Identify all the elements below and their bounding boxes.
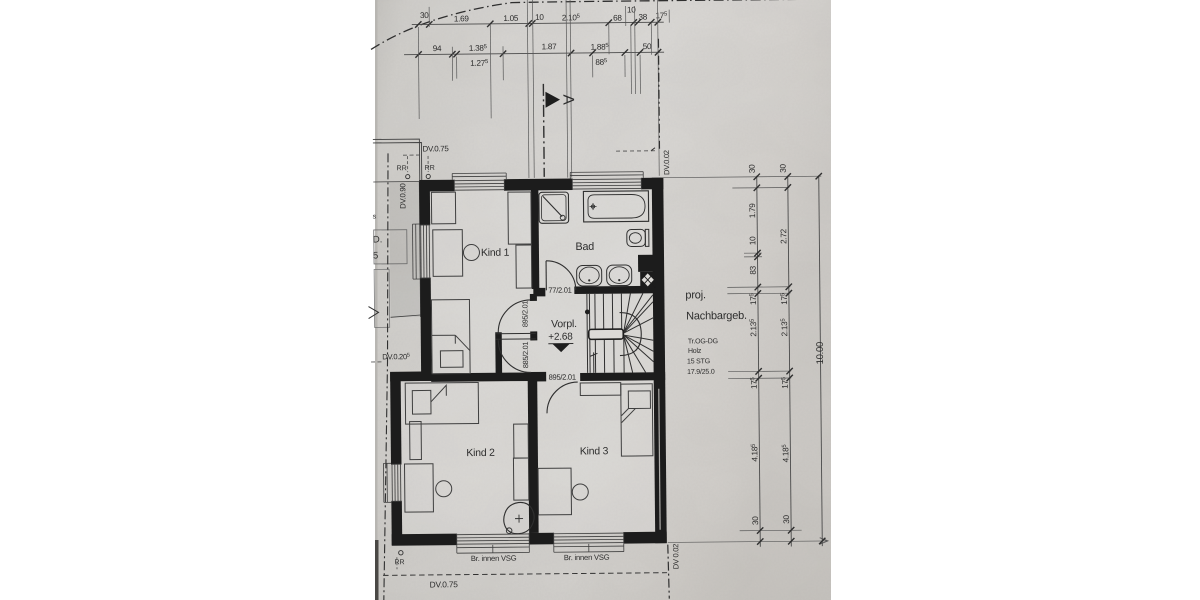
- svg-text:Kind 3: Kind 3: [580, 446, 609, 457]
- svg-text:DV.0.02: DV.0.02: [662, 150, 671, 175]
- svg-text:Br. innen VSG: Br. innen VSG: [564, 553, 610, 562]
- svg-text:30: 30: [782, 514, 791, 523]
- svg-text:Vorpl.: Vorpl.: [551, 318, 577, 330]
- svg-text:D.: D.: [373, 234, 383, 245]
- svg-text:Nachbargeb.: Nachbargeb.: [686, 310, 747, 323]
- svg-text:83: 83: [749, 265, 758, 274]
- svg-text:Kind 1: Kind 1: [481, 248, 510, 259]
- svg-text:885/2.01: 885/2.01: [521, 342, 530, 369]
- svg-text:Bad: Bad: [575, 241, 594, 253]
- svg-text:10: 10: [748, 236, 757, 245]
- svg-text:77/2.01: 77/2.01: [548, 286, 571, 295]
- svg-text:30: 30: [420, 11, 429, 20]
- svg-text:10.00: 10.00: [815, 342, 826, 365]
- svg-text:30: 30: [751, 516, 760, 525]
- svg-text:94: 94: [433, 44, 442, 53]
- svg-text:1.69: 1.69: [454, 14, 470, 23]
- svg-text:s: s: [373, 213, 377, 220]
- svg-text:68: 68: [613, 14, 622, 23]
- svg-text:Kind 2: Kind 2: [466, 448, 495, 459]
- svg-text:15 STG: 15 STG: [687, 358, 710, 365]
- svg-text:+2.68: +2.68: [548, 332, 573, 343]
- svg-text:Br. innen VSG: Br. innen VSG: [471, 554, 517, 563]
- svg-text:17.9/25.0: 17.9/25.0: [687, 369, 715, 376]
- svg-text:5: 5: [373, 250, 378, 261]
- svg-text:DV.0.90: DV.0.90: [398, 183, 407, 209]
- svg-text:proj.: proj.: [685, 289, 706, 301]
- svg-text:895/2.01: 895/2.01: [549, 373, 576, 382]
- svg-text:10: 10: [535, 13, 544, 22]
- svg-text:A: A: [559, 94, 576, 105]
- svg-text:30: 30: [748, 164, 757, 173]
- svg-text:1.87: 1.87: [542, 42, 558, 51]
- svg-text:30: 30: [779, 163, 788, 172]
- svg-text:895/2.01: 895/2.01: [520, 301, 529, 328]
- svg-text:RR: RR: [425, 165, 435, 172]
- svg-text:1.05: 1.05: [503, 14, 519, 23]
- svg-text:RR: RR: [397, 165, 407, 172]
- svg-text:DV.0.75: DV.0.75: [430, 579, 459, 589]
- svg-text:1.79: 1.79: [748, 203, 757, 219]
- svg-text:DV 0.02: DV 0.02: [671, 544, 680, 570]
- svg-text:DV.0.205: DV.0.205: [382, 352, 410, 361]
- svg-text:2.72: 2.72: [779, 228, 788, 244]
- svg-text:38: 38: [638, 13, 647, 22]
- svg-text:Holz: Holz: [688, 348, 702, 355]
- svg-text:DV.0.75: DV.0.75: [422, 144, 449, 153]
- svg-text:Tr.OG-DG: Tr.OG-DG: [688, 338, 718, 345]
- svg-text:RR: RR: [394, 559, 404, 566]
- svg-text:50: 50: [643, 42, 652, 51]
